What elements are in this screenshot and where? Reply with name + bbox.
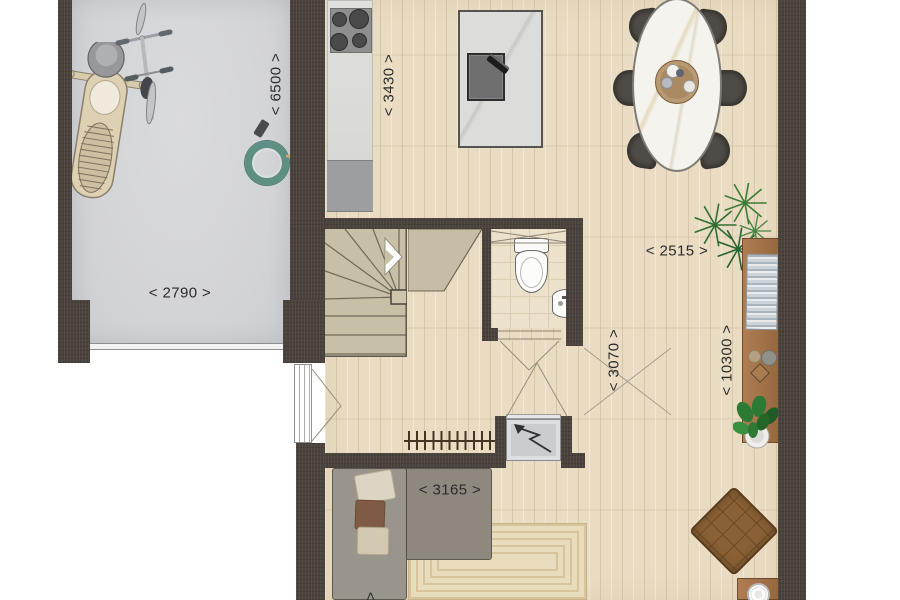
annotation-lines [0,0,900,600]
dimension-label-garage-width: < 2790 > [149,286,211,301]
floorplan-canvas: < 6500 > < 3430 > < 2790 > < 2515 > < 30… [0,0,900,600]
dimension-label-dining-width: < 2515 > [646,244,708,259]
dimension-label-hall-depth: < 3070 > [607,329,622,391]
dimension-label-cutoff-arrow: > [364,591,379,600]
dimension-label-house-depth: < 10300 > [720,324,735,395]
dimension-label-garage-length: < 6500 > [269,53,284,115]
dimension-label-kitchen-width: < 3430 > [382,54,397,116]
dimension-label-sofa-width: < 3165 > [419,483,481,498]
